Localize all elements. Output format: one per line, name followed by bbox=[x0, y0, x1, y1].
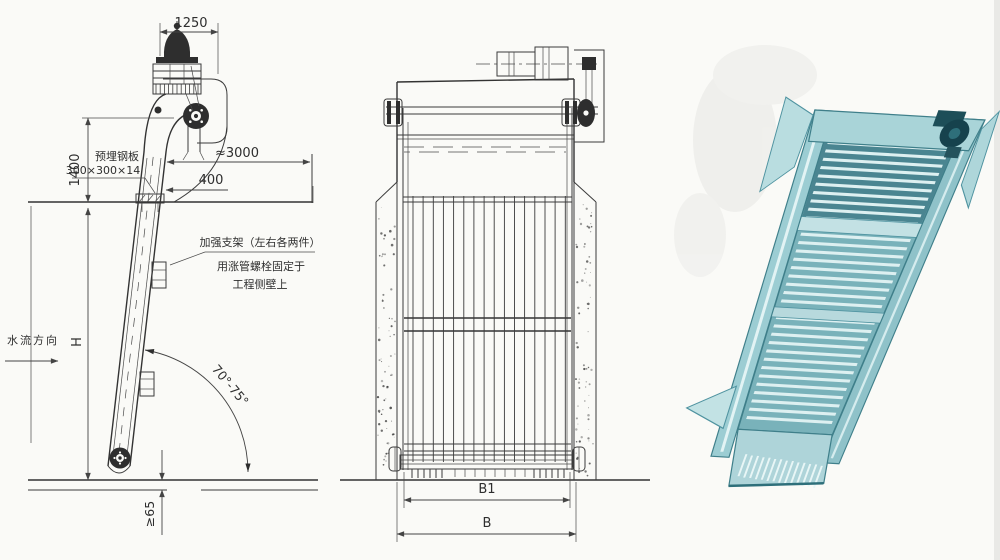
screen-frame bbox=[403, 108, 572, 470]
dimension-400: 400 bbox=[166, 173, 228, 190]
bottom-roller bbox=[389, 447, 585, 478]
reducer bbox=[535, 47, 568, 80]
dim-B-label: B bbox=[483, 516, 492, 531]
svg-text:预埋钢板: 预埋钢板 bbox=[95, 149, 139, 163]
dimension-H: H bbox=[70, 208, 88, 480]
channel-wall-left bbox=[376, 182, 397, 480]
dimension-3000: ≈3000 bbox=[167, 146, 313, 203]
dim-embed-label: ≥65 bbox=[142, 501, 157, 527]
dim-B1-label: B1 bbox=[478, 482, 495, 497]
side-elevation-drawing: 1250 1400 H ≈3000 400 70°-75° ≥65 水流方向 bbox=[0, 0, 330, 560]
product-photo bbox=[660, 0, 1000, 560]
chain-drive bbox=[577, 57, 596, 127]
dimension-B1: B1 bbox=[404, 472, 570, 508]
wall-brace-upper bbox=[152, 262, 166, 288]
scan-edge-shadow bbox=[994, 0, 1000, 560]
pivot-bolt bbox=[155, 107, 162, 114]
svg-text:300×300×14: 300×300×14 bbox=[66, 164, 140, 177]
channel-wall-right bbox=[574, 182, 596, 480]
brace-note: 加强支架（左右各两件） 用涨管螺栓固定于 工程侧壁上 bbox=[170, 235, 321, 291]
dim-angle-label: 70°-75° bbox=[209, 362, 252, 409]
svg-text:工程侧壁上: 工程侧壁上 bbox=[233, 277, 288, 291]
gearbox-hatch bbox=[156, 85, 198, 94]
dim-3000-label: ≈3000 bbox=[215, 146, 259, 161]
drive-sprocket bbox=[183, 103, 209, 129]
screen-bars bbox=[413, 196, 565, 462]
head-box bbox=[397, 79, 574, 182]
dimension-angle: 70°-75° bbox=[145, 349, 252, 472]
dimension-embed-depth: ≥65 bbox=[142, 450, 162, 535]
flow-direction: 水流方向 bbox=[5, 333, 59, 361]
flow-direction-label: 水流方向 bbox=[7, 333, 59, 347]
bottom-sprocket bbox=[110, 448, 131, 469]
bearing-left bbox=[384, 99, 402, 126]
dim-H-label: H bbox=[70, 337, 85, 347]
installation-drawing-sheet: 1250 1400 H ≈3000 400 70°-75° ≥65 水流方向 bbox=[0, 0, 1000, 560]
front-elevation-drawing: B1 B bbox=[330, 0, 660, 560]
svg-text:用涨管螺栓固定于: 用涨管螺栓固定于 bbox=[217, 259, 305, 273]
comb-teeth bbox=[412, 469, 564, 478]
bottom-apron bbox=[718, 429, 841, 491]
motor-assembly bbox=[476, 47, 604, 142]
dim-400-label: 400 bbox=[199, 173, 224, 188]
wall-brace-lower bbox=[140, 372, 154, 396]
dim-1250-label: 1250 bbox=[174, 16, 207, 31]
channel-bottom-line bbox=[28, 480, 318, 490]
svg-text:加强支架（左右各两件）: 加强支架（左右各两件） bbox=[200, 235, 321, 249]
